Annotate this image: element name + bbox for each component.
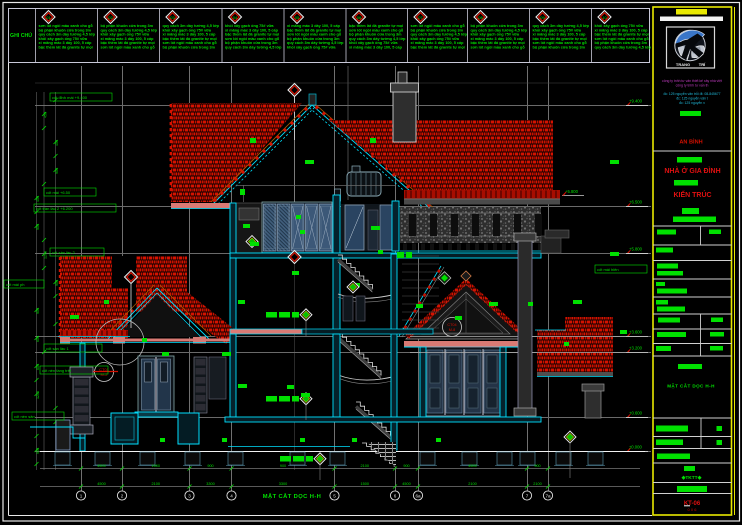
svg-text:900: 900 (55, 280, 59, 286)
svg-text:600: 600 (36, 336, 40, 342)
svg-text:4500: 4500 (402, 482, 410, 486)
svg-text:900: 900 (36, 308, 40, 314)
svg-text:AN BÌNH: AN BÌNH (679, 138, 702, 146)
svg-text:03: 03 (170, 15, 175, 20)
svg-text:01: 01 (46, 15, 51, 20)
svg-text:cốt sàn lầu 1: cốt sàn lầu 1 (46, 346, 69, 351)
svg-text:đc: 125 nguyễn văn t: đc: 125 nguyễn văn t (676, 96, 708, 101)
svg-text:2100: 2100 (533, 482, 541, 486)
svg-text:0 0 6: 0 0 6 (688, 507, 698, 512)
svg-text:09: 09 (540, 15, 545, 20)
svg-text:6a: 6a (415, 493, 421, 498)
svg-text:900: 900 (36, 448, 40, 454)
svg-text:4: 4 (230, 493, 233, 498)
svg-text:06: 06 (357, 15, 362, 20)
svg-text:900: 900 (36, 224, 40, 230)
svg-text:M-2: M-2 (101, 372, 109, 377)
svg-text:1200: 1200 (44, 251, 48, 259)
svg-text:MẬT CẪT DỌC H-H: MẬT CẪT DỌC H-H (667, 383, 715, 389)
svg-text:2100: 2100 (468, 482, 476, 486)
svg-text:7: 7 (526, 493, 529, 498)
svg-text:1500: 1500 (361, 482, 369, 486)
svg-text:MẬT CẪT DỌC H-H: MẬT CẪT DỌC H-H (263, 493, 322, 500)
svg-text:3300: 3300 (279, 482, 287, 486)
svg-text:công ty tnhh tư vấn thiết kế x: công ty tnhh tư vấn thiết kế xây nhà việ… (662, 79, 722, 83)
svg-text:2100: 2100 (152, 482, 160, 486)
svg-text:900: 900 (207, 464, 213, 468)
svg-text:cốt mái hiên: cốt mái hiên (597, 267, 619, 272)
svg-text:cốt đỉnh mái +9.400: cốt đỉnh mái +9.400 (52, 95, 88, 100)
svg-text:05: 05 (295, 15, 300, 20)
svg-text:900: 900 (403, 464, 409, 468)
svg-text:+5.800: +5.800 (565, 189, 579, 194)
svg-text:+0.600: +0.600 (629, 411, 643, 416)
svg-text:cốt trần lầu 2 +6.200: cốt trần lầu 2 +6.200 (36, 206, 73, 211)
svg-text:bậc thềm lát đá granite tự mọi: bậc thềm lát đá granite tự mọisơn lót ng… (349, 24, 406, 50)
svg-text:quy cách 3m dày tường 4,5 lớpk: quy cách 3m dày tường 4,5 lớpkhối xây gạ… (163, 24, 220, 50)
svg-text:900: 900 (534, 464, 540, 468)
svg-text:cốt mái +6.50: cốt mái +6.50 (46, 190, 71, 195)
svg-text:đc: 125 nguyễn văn trỗi đt: 08: đc: 125 nguyễn văn trỗi đt: 08-845677 (663, 91, 720, 96)
svg-text:3: 3 (188, 493, 191, 498)
svg-text:4500: 4500 (468, 464, 476, 468)
svg-text:7a: 7a (545, 493, 551, 498)
svg-text:bộ phận khuôn cửa trong 3mquy: bộ phận khuôn cửa trong 3mquy cách 3m dà… (471, 24, 528, 50)
svg-text:04: 04 (233, 15, 238, 20)
svg-text:GHI CHÚ: GHI CHÚ (10, 32, 32, 39)
svg-text:2: 2 (121, 493, 124, 498)
svg-text:02: 02 (108, 15, 113, 20)
svg-text:công ty tnhh tư vấn th: công ty tnhh tư vấn th (676, 84, 709, 88)
svg-text:CT04: CT04 (447, 323, 456, 327)
svg-text:cốt nền tầng trệt: cốt nền tầng trệt (42, 368, 72, 373)
svg-text:TRANG: TRANG (676, 62, 690, 67)
svg-text:+5.800: +5.800 (629, 247, 643, 252)
svg-text:07: 07 (418, 15, 423, 20)
svg-text:cốt mái ph: cốt mái ph (6, 282, 24, 287)
svg-text:1500: 1500 (152, 464, 160, 468)
svg-text:1: 1 (80, 493, 83, 498)
svg-text:đc: 125 nguyễn v: đc: 125 nguyễn v (679, 100, 705, 105)
svg-text:bộ phận khuôn cửa trong 3mquy: bộ phận khuôn cửa trong 3mquy cách 3m dà… (101, 24, 158, 50)
svg-text:10: 10 (602, 15, 607, 20)
svg-text:◆TKTT◆: ◆TKTT◆ (681, 475, 702, 481)
svg-text:6: 6 (394, 493, 397, 498)
svg-text:khối xây gạch ống 75# vữaxi mă: khối xây gạch ống 75# vữaxi măng mác 3 d… (595, 24, 652, 50)
svg-text:cốt nền sân: cốt nền sân (14, 414, 35, 419)
svg-text:600: 600 (36, 364, 40, 370)
svg-text:+9.400: +9.400 (629, 99, 643, 104)
svg-text:±0.000: ±0.000 (629, 445, 642, 450)
svg-text:NHÀ Ở GIA ĐÌNH: NHÀ Ở GIA ĐÌNH (664, 166, 720, 175)
svg-text:quy cách 3m dày tường 4,5 lớpk: quy cách 3m dày tường 4,5 lớpkhối xây gạ… (533, 24, 590, 50)
svg-text:4500: 4500 (97, 482, 105, 486)
svg-text:450: 450 (44, 112, 48, 118)
svg-text:2100: 2100 (361, 464, 369, 468)
svg-text:450: 450 (55, 140, 59, 146)
svg-text:TRÍ: TRÍ (699, 62, 706, 67)
svg-text:450: 450 (36, 196, 40, 202)
svg-text:5: 5 (333, 493, 336, 498)
svg-text:4500: 4500 (97, 464, 105, 468)
svg-text:M-8: M-8 (449, 328, 456, 332)
svg-text:900: 900 (280, 464, 286, 468)
svg-text:+3.600: +3.600 (629, 330, 643, 335)
svg-text:900: 900 (55, 168, 59, 174)
svg-text:3300: 3300 (206, 482, 214, 486)
svg-text:+3.200: +3.200 (629, 346, 643, 351)
svg-text:khối xây gạch ống 75# vữaxi mă: khối xây gạch ống 75# vữaxi măng mác 3 d… (225, 24, 282, 50)
svg-text:1200: 1200 (36, 391, 40, 399)
svg-text:cốt sàn lầu 2: cốt sàn lầu 2 (52, 250, 75, 255)
svg-text:+6.500: +6.500 (629, 200, 643, 205)
svg-text:08: 08 (478, 15, 483, 20)
